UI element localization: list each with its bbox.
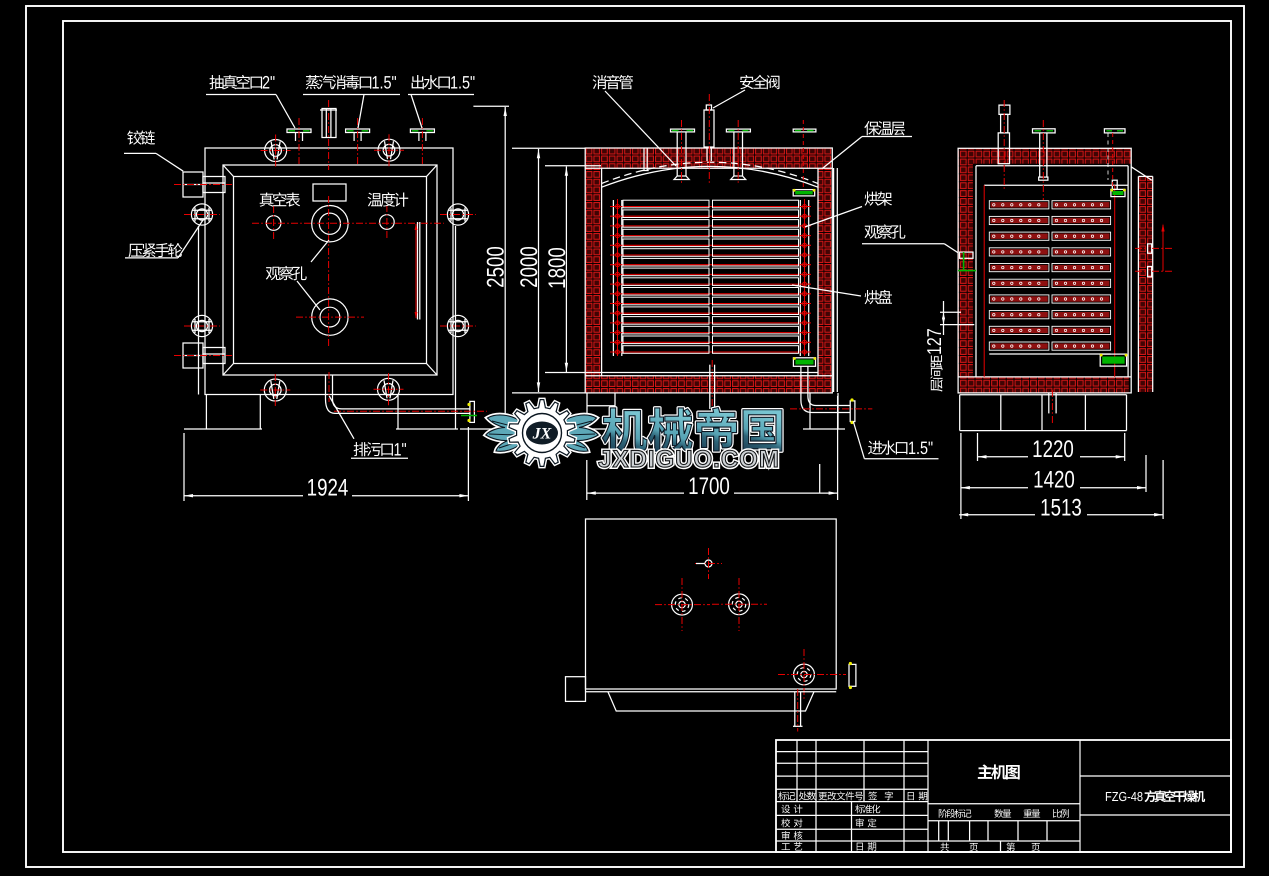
svg-text:2": 2" — [262, 73, 275, 93]
svg-text:1513: 1513 — [1040, 495, 1082, 522]
svg-text:JXDIGUO.COM: JXDIGUO.COM — [598, 446, 780, 473]
svg-text:2000: 2000 — [516, 246, 543, 288]
svg-text:1420: 1420 — [1033, 467, 1075, 494]
svg-text:1700: 1700 — [688, 473, 730, 500]
svg-text:1.5": 1.5" — [450, 73, 475, 93]
svg-text:JX: JX — [532, 426, 552, 443]
svg-text:1924: 1924 — [307, 475, 349, 502]
svg-text:127: 127 — [924, 328, 946, 355]
svg-text:1.5": 1.5" — [372, 73, 397, 93]
svg-text:2500: 2500 — [483, 246, 510, 288]
svg-text:1.5": 1.5" — [908, 438, 933, 458]
svg-text:1800: 1800 — [544, 247, 571, 289]
svg-text:FZG-48: FZG-48 — [1105, 789, 1143, 804]
svg-text:1220: 1220 — [1032, 436, 1074, 463]
svg-text:1": 1" — [394, 440, 407, 460]
